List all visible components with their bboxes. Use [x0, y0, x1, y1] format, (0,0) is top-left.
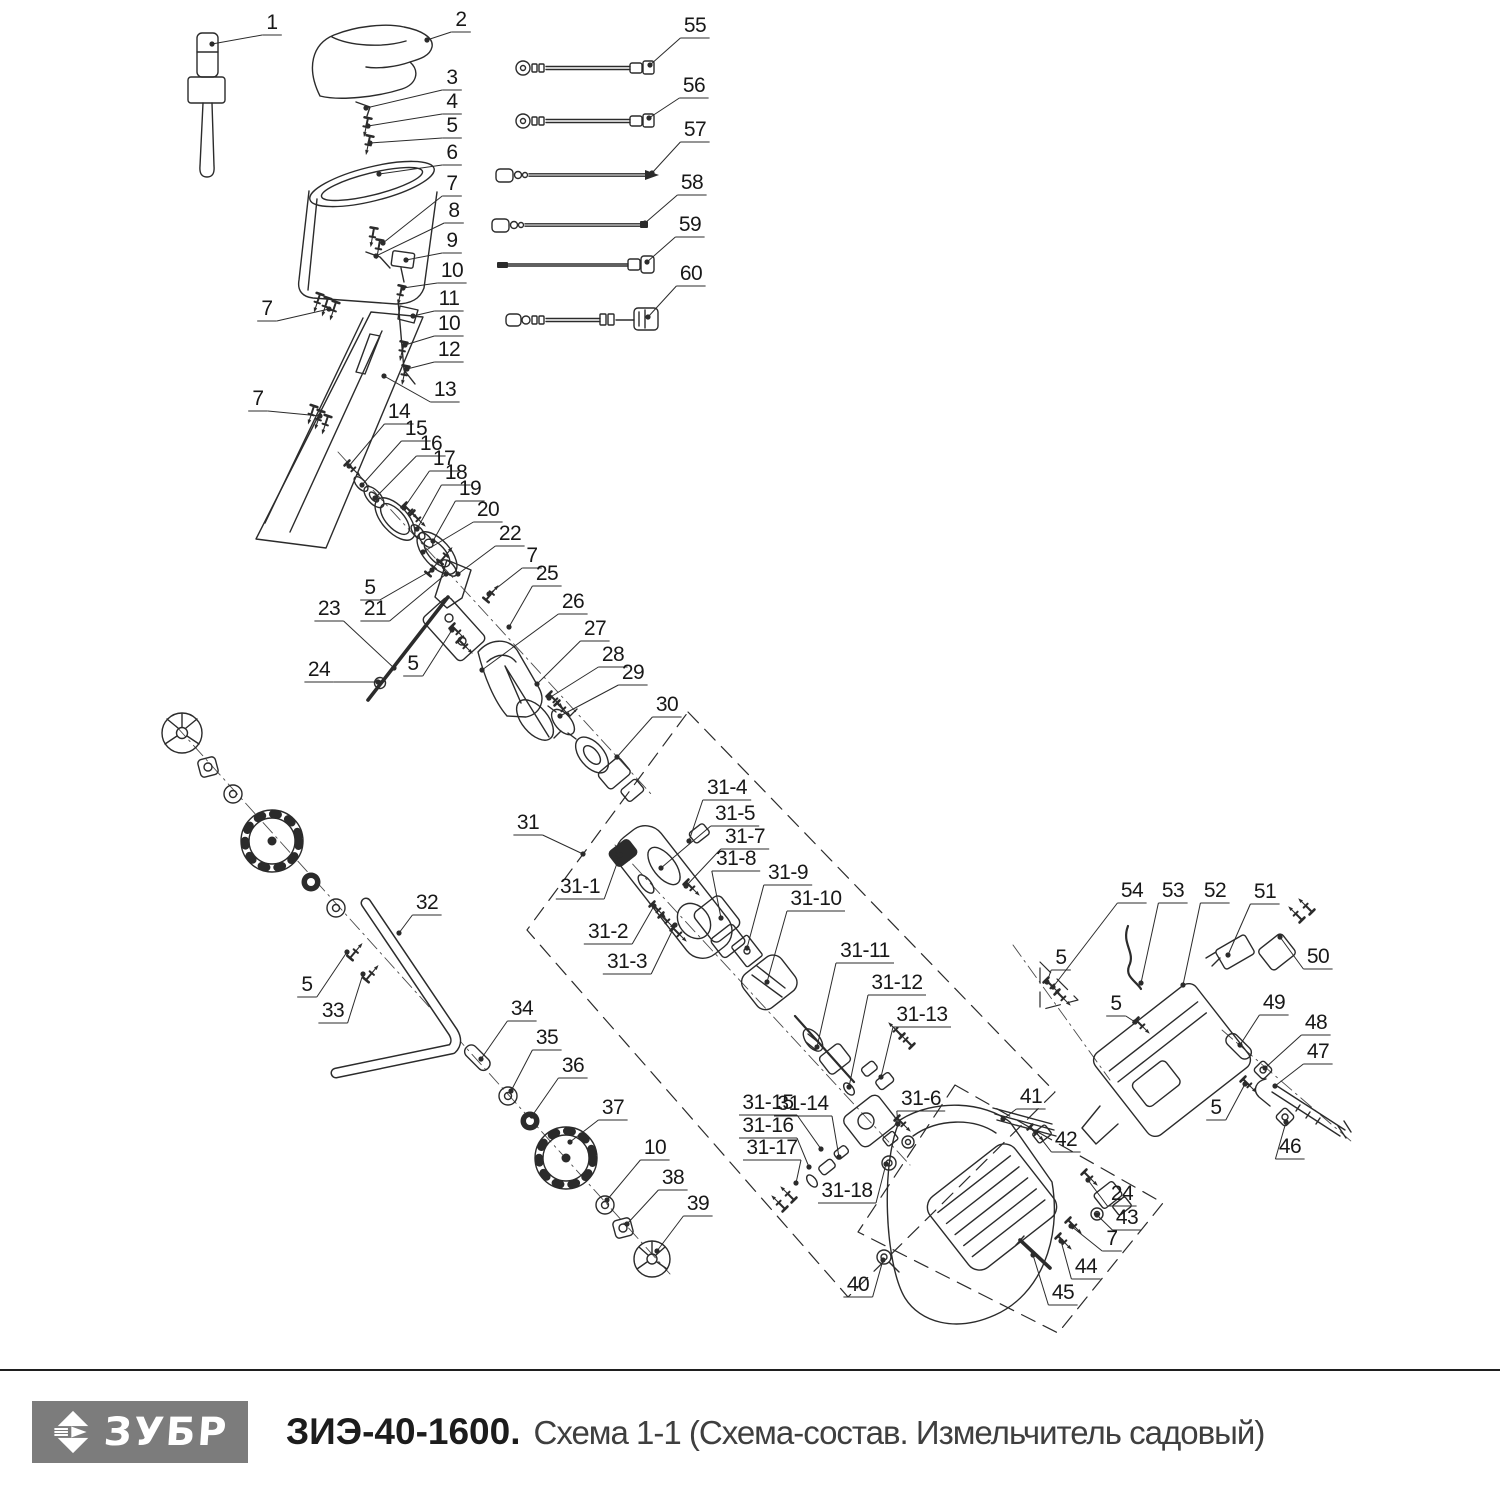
svg-text:60: 60	[680, 262, 702, 285]
svg-text:19: 19	[459, 477, 481, 500]
part-callout-33: 33	[318, 971, 365, 1023]
part-callout-28: 28	[546, 643, 627, 701]
svg-text:7: 7	[446, 172, 457, 195]
svg-text:38: 38	[662, 1166, 684, 1189]
svg-text:7: 7	[252, 387, 263, 410]
mount-bracket-plates	[421, 560, 542, 717]
svg-text:47: 47	[1307, 1040, 1329, 1063]
svg-text:49: 49	[1263, 991, 1285, 1014]
svg-text:31-11: 31-11	[840, 939, 890, 962]
svg-text:44: 44	[1075, 1255, 1098, 1278]
cable-56	[516, 114, 654, 128]
svg-text:7: 7	[1106, 1227, 1117, 1250]
svg-text:32: 32	[416, 891, 438, 914]
svg-text:46: 46	[1279, 1135, 1301, 1158]
part-callout-49: 49	[1237, 991, 1288, 1048]
part-callout-51: 51	[1225, 880, 1279, 958]
svg-text:50: 50	[1307, 945, 1329, 968]
svg-text:5: 5	[1210, 1096, 1221, 1119]
svg-text:5: 5	[1110, 992, 1121, 1015]
svg-text:31-3: 31-3	[607, 950, 647, 973]
svg-text:9: 9	[446, 229, 457, 252]
cable-59	[497, 256, 654, 273]
svg-text:31-1: 31-1	[560, 875, 600, 898]
part-callout-31-2: 31-2	[584, 903, 657, 944]
part-callout-26: 26	[479, 590, 587, 673]
callout-layer: 1234567891011101213771415161718192022725…	[209, 8, 1332, 1305]
part-callout-5: 5	[403, 627, 454, 676]
svg-text:5: 5	[446, 114, 457, 137]
part-callout-31: 31	[513, 811, 585, 857]
svg-text:31-8: 31-8	[716, 847, 756, 870]
svg-text:58: 58	[681, 171, 703, 194]
svg-text:21: 21	[364, 597, 386, 620]
parts-diagram-page: 1234567891011101213771415161718192022725…	[0, 0, 1500, 1500]
part-frame-leg-tube	[336, 903, 456, 1073]
svg-text:25: 25	[536, 562, 558, 585]
svg-text:1: 1	[266, 11, 277, 34]
part-callout-59: 59	[644, 213, 704, 265]
model-number: ЗИЭ-40-1600.	[286, 1411, 520, 1453]
part-callout-34: 34	[478, 997, 536, 1062]
svg-text:43: 43	[1116, 1206, 1138, 1229]
svg-text:31-4: 31-4	[707, 776, 748, 799]
svg-text:27: 27	[584, 617, 606, 640]
svg-text:53: 53	[1162, 879, 1184, 902]
rotor-parts-27-30	[505, 666, 645, 803]
svg-text:36: 36	[562, 1054, 584, 1077]
part-callout-56: 56	[646, 74, 708, 121]
zubr-logo-box: ЗУБР	[32, 1401, 248, 1463]
svg-text:41: 41	[1020, 1085, 1042, 1108]
svg-text:28: 28	[602, 643, 624, 666]
svg-text:37: 37	[602, 1096, 624, 1119]
svg-text:26: 26	[562, 590, 584, 613]
part-callout-53: 53	[1138, 879, 1187, 986]
part-callout-5: 5	[360, 567, 434, 600]
part-callout-38: 38	[624, 1166, 687, 1227]
svg-text:33: 33	[322, 999, 344, 1022]
svg-text:54: 54	[1121, 879, 1144, 902]
part-callout-24: 24	[304, 658, 380, 685]
part-callout-31-13: 31-13	[878, 1003, 951, 1080]
svg-text:2: 2	[455, 8, 466, 31]
fastener-set-8-13	[366, 251, 418, 386]
svg-text:31-5: 31-5	[715, 802, 755, 825]
part-callout-52: 52	[1180, 879, 1229, 988]
cable-55	[516, 61, 654, 75]
part-callout-2: 2	[424, 8, 470, 43]
svg-text:10: 10	[441, 259, 463, 282]
svg-text:31-18: 31-18	[821, 1179, 872, 1202]
footer: ЗУБР ЗИЭ-40-1600. Схема 1-1 (Схема-соста…	[0, 1369, 1500, 1463]
part-callout-9: 9	[403, 229, 461, 263]
cable-60	[506, 308, 658, 330]
svg-text:31-2: 31-2	[588, 920, 628, 943]
part-callout-31-18: 31-18	[818, 1161, 889, 1203]
part-callout-5: 5	[1106, 992, 1137, 1025]
part-callout-10: 10	[604, 1136, 669, 1203]
brand-name: ЗУБР	[103, 1410, 230, 1455]
svg-text:31-10: 31-10	[790, 887, 841, 910]
part-callout-20: 20	[420, 498, 502, 555]
gearbox-dashed-box	[527, 712, 1055, 1297]
svg-text:55: 55	[684, 14, 706, 37]
svg-text:31-7: 31-7	[725, 825, 765, 848]
svg-text:20: 20	[477, 498, 499, 521]
part-callout-27: 27	[534, 617, 609, 687]
svg-text:11: 11	[439, 287, 460, 310]
part-callout-30: 30	[614, 693, 681, 760]
svg-text:34: 34	[511, 997, 534, 1020]
svg-text:10: 10	[438, 312, 460, 335]
part-callout-31-17: 31-17	[743, 1136, 801, 1186]
svg-text:31-16: 31-16	[742, 1114, 793, 1137]
svg-text:30: 30	[656, 693, 678, 716]
part-callout-22: 22	[455, 522, 524, 577]
svg-text:31-9: 31-9	[768, 861, 808, 884]
part-callout-7: 7	[1068, 1223, 1121, 1251]
svg-text:31-17: 31-17	[746, 1136, 797, 1159]
part-callout-47: 47	[1272, 1040, 1332, 1089]
part-callout-14: 14	[346, 400, 413, 469]
part-callout-7: 7	[486, 544, 541, 597]
part-callout-31-8: 31-8	[712, 847, 760, 921]
part-pusher-stick	[188, 33, 225, 177]
svg-text:24: 24	[1111, 1182, 1134, 1205]
part-callout-29: 29	[557, 661, 647, 719]
svg-text:31-13: 31-13	[896, 1003, 947, 1026]
part-callout-5: 5	[297, 949, 349, 997]
svg-text:31: 31	[517, 811, 539, 834]
svg-text:5: 5	[407, 652, 418, 675]
svg-text:5: 5	[364, 576, 375, 599]
svg-text:4: 4	[446, 90, 458, 113]
svg-text:22: 22	[499, 522, 521, 545]
part-callout-36: 36	[529, 1054, 587, 1119]
part-callout-35: 35	[508, 1026, 561, 1094]
part-callout-45: 45	[1030, 1252, 1077, 1305]
svg-text:42: 42	[1055, 1128, 1077, 1151]
zubr-arrow-emblem-icon	[51, 1410, 95, 1454]
part-callout-12: 12	[404, 338, 463, 372]
svg-text:31-6: 31-6	[901, 1087, 941, 1110]
part-callout-46: 46	[1275, 1119, 1304, 1159]
part-callout-31-12: 31-12	[846, 971, 926, 1090]
svg-text:52: 52	[1204, 879, 1226, 902]
part-callout-25: 25	[506, 562, 561, 630]
part-callout-54: 54	[1050, 879, 1146, 990]
part-callout-31-10: 31-10	[764, 887, 845, 985]
part-callout-7: 7	[257, 297, 331, 321]
svg-text:23: 23	[318, 597, 340, 620]
svg-text:6: 6	[446, 141, 457, 164]
svg-text:56: 56	[683, 74, 705, 97]
svg-text:35: 35	[536, 1026, 558, 1049]
svg-text:59: 59	[679, 213, 701, 236]
svg-text:10: 10	[644, 1136, 666, 1159]
part-motor-housing	[877, 1105, 1132, 1324]
svg-text:48: 48	[1305, 1011, 1327, 1034]
svg-text:45: 45	[1052, 1281, 1074, 1304]
part-callout-5: 5	[1206, 1081, 1247, 1120]
part-top-cover	[312, 25, 432, 98]
part-callout-37: 37	[567, 1096, 627, 1145]
svg-text:12: 12	[438, 338, 460, 361]
part-callout-40: 40	[843, 1257, 885, 1297]
svg-text:3: 3	[446, 66, 457, 89]
footer-caption: ЗИЭ-40-1600. Схема 1-1 (Схема-состав. Из…	[286, 1411, 1264, 1453]
svg-text:29: 29	[622, 661, 644, 684]
svg-text:24: 24	[308, 658, 331, 681]
svg-text:31-12: 31-12	[871, 971, 922, 994]
part-callout-1: 1	[209, 11, 281, 47]
cable-58	[492, 219, 648, 232]
svg-text:7: 7	[261, 297, 272, 320]
wheel-train-left	[162, 713, 345, 917]
exploded-parts-diagram: 1234567891011101213771415161718192022725…	[0, 0, 1500, 1369]
svg-text:5: 5	[301, 973, 312, 996]
svg-text:5: 5	[1055, 946, 1066, 969]
svg-text:40: 40	[847, 1273, 869, 1296]
svg-text:8: 8	[448, 199, 459, 222]
part-hopper-housing	[299, 152, 439, 304]
svg-text:57: 57	[684, 118, 706, 141]
fastener-set-7-hopper	[311, 227, 384, 321]
svg-text:31-15: 31-15	[742, 1091, 793, 1114]
part-callout-10: 10	[400, 259, 466, 291]
svg-text:13: 13	[434, 378, 456, 401]
part-callout-32: 32	[396, 891, 441, 936]
schema-title: Схема 1-1 (Схема-состав. Измельчитель са…	[533, 1414, 1264, 1452]
part-callout-57: 57	[649, 118, 709, 176]
cable-57	[496, 169, 659, 182]
part-callout-31-11: 31-11	[814, 939, 894, 1050]
part-callout-31-6: 31-6	[895, 1087, 945, 1127]
svg-text:39: 39	[687, 1192, 709, 1215]
svg-text:51: 51	[1254, 880, 1276, 903]
part-callout-55: 55	[647, 14, 709, 68]
part-chute-housing	[256, 312, 423, 548]
